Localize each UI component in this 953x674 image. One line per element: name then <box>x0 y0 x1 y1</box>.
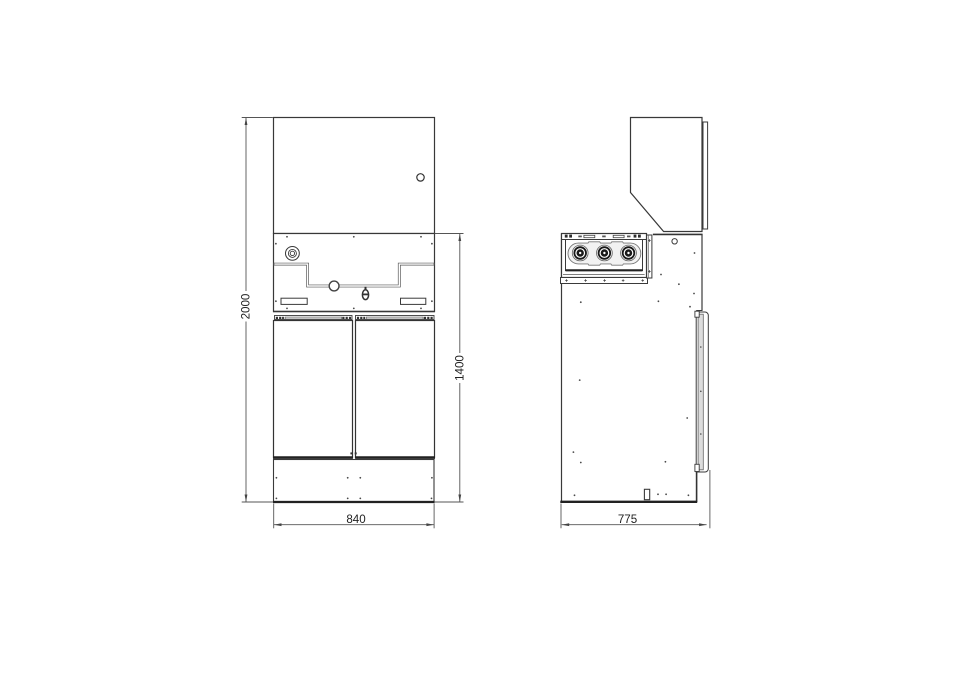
svg-text:1400: 1400 <box>453 355 466 381</box>
svg-text:2000: 2000 <box>240 294 253 320</box>
svg-text:840: 840 <box>346 513 365 526</box>
svg-text:775: 775 <box>618 513 637 526</box>
